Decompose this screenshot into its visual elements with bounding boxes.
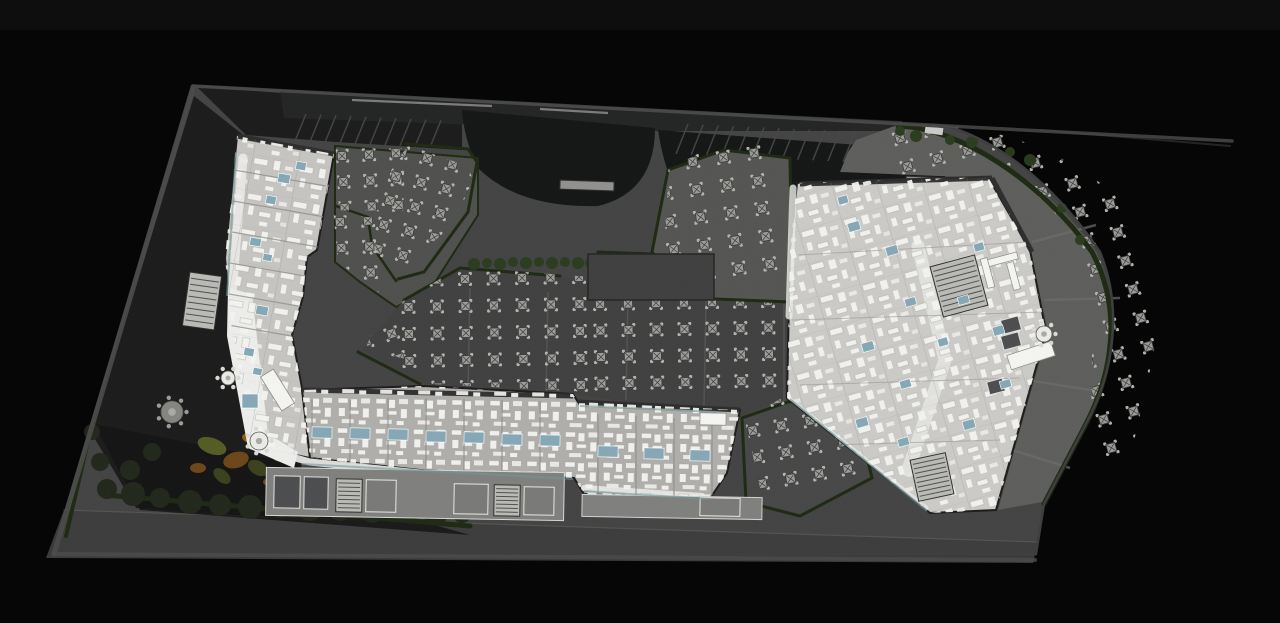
backdrop-top-band	[0, 0, 1280, 30]
site-plan-canvas	[0, 0, 1280, 623]
ground-noise	[52, 86, 1113, 556]
floor-plan-svg	[0, 0, 1280, 623]
